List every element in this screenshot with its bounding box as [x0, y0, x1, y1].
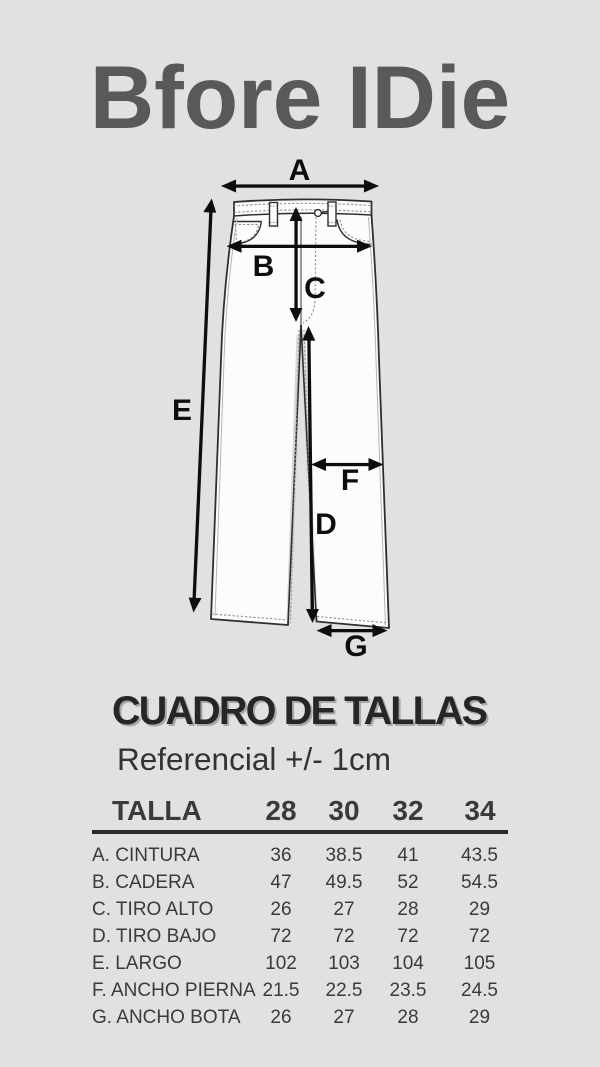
svg-text:E: E [172, 394, 192, 427]
svg-text:A: A [289, 154, 311, 187]
svg-text:B: B [253, 250, 275, 283]
svg-text:D: D [315, 508, 337, 541]
svg-text:G: G [344, 630, 367, 663]
svg-text:F: F [341, 464, 359, 497]
svg-text:C: C [304, 272, 326, 305]
